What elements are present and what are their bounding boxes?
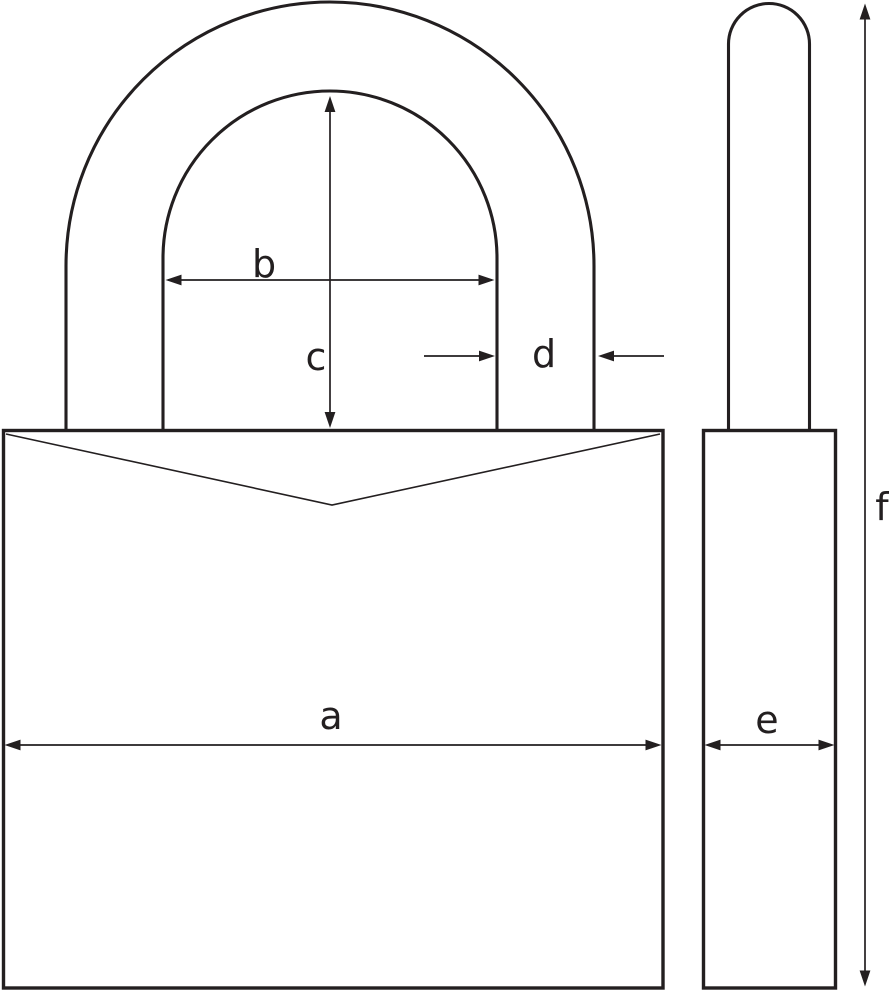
dim-c-label: c	[306, 335, 327, 379]
dimension-d: d	[424, 332, 664, 376]
side-shackle-outline	[729, 4, 810, 431]
dim-d-arrowhead-left	[479, 351, 495, 362]
dim-d-arrowhead-right	[598, 351, 614, 362]
dim-b-arrowhead-left	[166, 275, 182, 286]
dim-b-label: b	[252, 242, 276, 286]
dimension-c: c	[306, 96, 336, 428]
padlock-side-view	[704, 4, 836, 989]
dim-d-label: d	[532, 332, 556, 376]
dim-f-label: f	[875, 485, 889, 529]
padlock-dimension-diagram: b c d a e	[0, 0, 889, 1000]
dim-e-label: e	[755, 698, 778, 742]
dimension-f: f	[860, 4, 889, 987]
dim-f-arrowhead-top	[860, 4, 871, 20]
padlock-front-view	[4, 2, 664, 988]
dim-c-arrowhead-bottom	[325, 412, 336, 428]
dim-a-label: a	[319, 694, 342, 738]
dim-b-arrowhead-right	[479, 275, 495, 286]
dim-c-arrowhead-top	[325, 96, 336, 112]
diagram-canvas: b c d a e	[0, 0, 889, 1000]
dim-f-arrowhead-bottom	[860, 971, 871, 987]
